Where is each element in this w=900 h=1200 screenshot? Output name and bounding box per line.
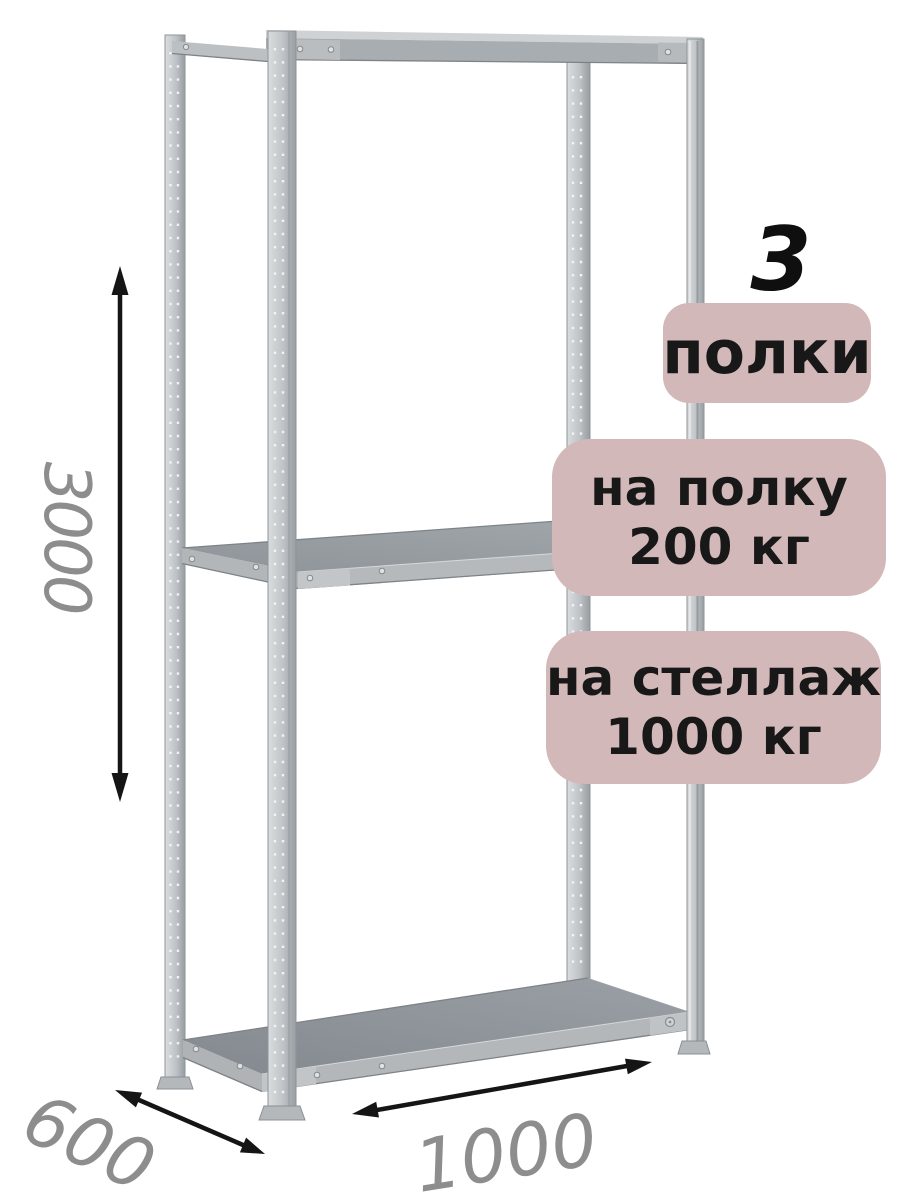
- badge-per-rack-load: на стеллаж 1000 кг: [546, 631, 881, 784]
- badge-shelves: полки: [663, 303, 871, 403]
- badge-per-shelf-load: на полку 200 кг: [552, 439, 886, 596]
- height-dimension-label: 3000: [26, 427, 106, 647]
- badge-shelves-label: полки: [662, 318, 871, 388]
- shelf-top: [172, 30, 703, 64]
- rack-illustration: [0, 0, 900, 1200]
- badge-per-rack-line2: 1000 кг: [605, 708, 822, 767]
- product-image: 3000 600 1000 3 полки на полку 200 кг на…: [0, 0, 900, 1200]
- height-arrow: [112, 266, 129, 802]
- badge-per-shelf-line2: 200 кг: [628, 518, 810, 577]
- shelf-bottom: [183, 978, 690, 1092]
- post-front-left: [268, 31, 296, 1115]
- badge-per-rack-line1: на стеллаж: [546, 649, 881, 708]
- badge-per-shelf-line1: на полку: [590, 459, 848, 518]
- shelf-count-number: 3: [706, 212, 856, 307]
